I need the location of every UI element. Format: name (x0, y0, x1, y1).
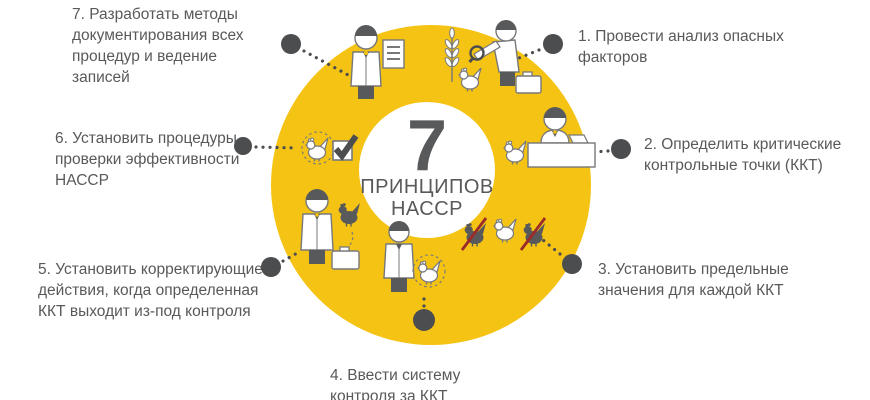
chicken-icon (306, 138, 328, 162)
desk (528, 143, 595, 167)
scientist-document-icon (345, 24, 407, 102)
checkbox-icon (333, 136, 356, 160)
briefcase-icon (516, 72, 541, 93)
wheat-icon (444, 28, 460, 82)
dot-principle-5 (261, 257, 281, 277)
registrar-desk-icon (503, 106, 598, 170)
dashed-arc (347, 232, 353, 248)
center-number: 7 (407, 116, 447, 176)
dot-principle-6 (234, 137, 252, 155)
dot-principle-4 (413, 309, 435, 331)
inspector-magnifier-icon (443, 20, 547, 98)
center-subtitle-2: НАССР (391, 198, 463, 220)
dot-principle-3 (562, 254, 582, 274)
chicken-checkbox-icon (299, 122, 359, 168)
haccp-infographic: 7 ПРИНЦИПОВ НАССР (0, 0, 870, 400)
trail-principle-6 (256, 147, 298, 148)
trail-principle-7 (304, 51, 350, 76)
briefcase-icon (332, 247, 359, 269)
laptop-icon (569, 135, 588, 143)
rejected-chickens-icon (461, 214, 551, 252)
dark-chicken-icon (338, 203, 360, 227)
auditor-briefcase-icon (294, 188, 366, 272)
chicken-icon (494, 219, 516, 243)
dot-principle-7 (281, 34, 301, 54)
worker-chicken-icon (374, 220, 448, 300)
chicken-icon (418, 261, 440, 285)
dot-principle-2 (611, 139, 631, 159)
chicken-icon (459, 68, 481, 92)
chicken-icon (504, 141, 526, 165)
document-icon (383, 40, 404, 68)
center-subtitle-1: ПРИНЦИПОВ (360, 176, 493, 198)
